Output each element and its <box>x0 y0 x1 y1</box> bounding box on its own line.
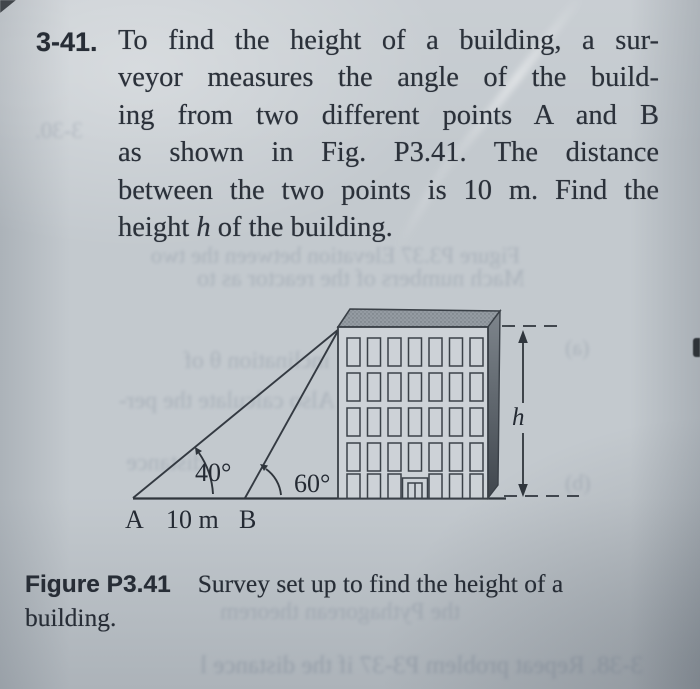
height-arrow-down <box>518 484 528 497</box>
figure-caption-label: Figure P3.41 <box>25 568 171 601</box>
distance-label: 10 m <box>166 505 219 534</box>
angle-arc-b <box>266 469 281 495</box>
problem-text-line: between the two points is 10 m. Find the <box>118 172 659 209</box>
point-label-a: A <box>125 505 144 534</box>
height-arrow-up <box>518 330 528 343</box>
building-side-face <box>488 311 500 498</box>
bleedthrough-margin-number: 3-30. <box>35 118 83 144</box>
figure-caption-text: building. <box>25 601 665 634</box>
problem-text-line: as shown in Fig. P3.41. The distance <box>118 134 659 171</box>
angle-label-b: 60° <box>294 469 330 498</box>
photo-corner-shadow <box>0 0 16 13</box>
survey-figure: 40° 60° A 10 m B h <box>100 285 620 535</box>
problem-text-line: ing from two different points A and B <box>118 97 659 134</box>
textbook-page-photo: 3-30. Figure P3.37 Elevation between the… <box>0 0 700 689</box>
problem-text-line: height h of the building. <box>118 209 659 246</box>
angle-label-a: 40° <box>195 458 231 487</box>
point-label-b: B <box>239 505 256 534</box>
figure-caption: Figure P3.41 Survey set up to find the h… <box>25 567 665 634</box>
figure-caption-text: Survey set up to find the height of a <box>198 567 563 600</box>
problem-number: 3-41. <box>36 29 98 56</box>
variable-h: h <box>196 212 210 243</box>
bleedthrough-bottom-line: 3-38. Repeat problem P3-37 if the distan… <box>28 652 643 680</box>
problem-text-line: veyor measures the angle of the build- <box>118 59 659 96</box>
problem-text: To find the height of a building, a sur-… <box>118 22 659 246</box>
page-edge-mark <box>693 338 700 357</box>
building-roof <box>338 309 500 327</box>
problem-text-line: To find the height of a building, a sur- <box>118 22 659 59</box>
height-label: h <box>512 404 525 431</box>
